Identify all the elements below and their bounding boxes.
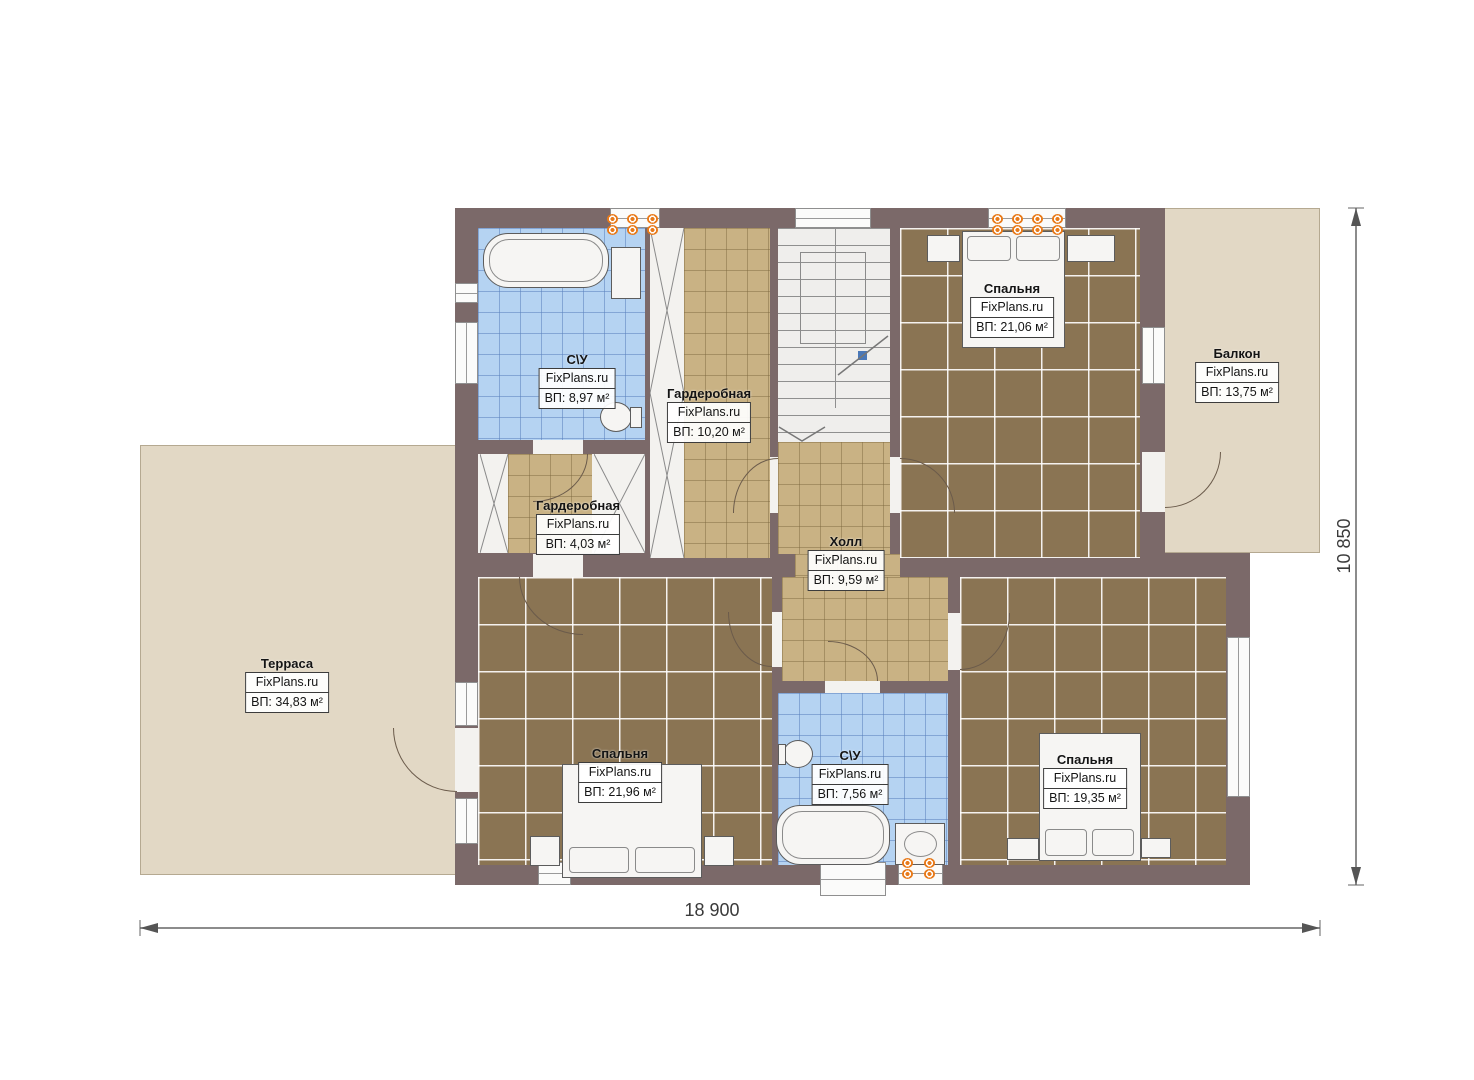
floor-plan: С\У FixPlans.ru ВП: 8,97 м² Гардеробная … [0,0,1474,1080]
nightstand [927,235,960,262]
room-area: ВП: 7,56 м² [812,784,889,805]
window [455,322,478,384]
room-name: Балкон [1195,346,1279,361]
room-watermark: FixPlans.ru [1043,768,1127,789]
room-label-hall: Холл FixPlans.ru ВП: 9,59 м² [808,534,885,591]
bedroom-top-door-opening [890,457,900,513]
bathroom-bottom-door-opening [825,681,880,693]
room-label-bathroom-top: С\У FixPlans.ru ВП: 8,97 м² [539,352,616,409]
room-area: ВП: 8,97 м² [539,388,616,409]
room-area: ВП: 21,96 м² [578,782,662,803]
room-name: Гардеробная [536,498,620,513]
nightstand [704,836,734,866]
room-label-bathroom-bottom: С\У FixPlans.ru ВП: 7,56 м² [812,748,889,805]
room-area: ВП: 13,75 м² [1195,382,1279,403]
wardrobe-x-icon [480,454,508,553]
room-label-wardrobe-top: Гардеробная FixPlans.ru ВП: 10,20 м² [667,386,751,443]
room-label-wardrobe-small: Гардеробная FixPlans.ru ВП: 4,03 м² [536,498,620,555]
room-name: С\У [812,748,889,763]
room-watermark: FixPlans.ru [245,672,329,693]
window [1142,327,1165,384]
toilet [783,740,813,768]
window-bay [820,862,886,896]
room-name: С\У [539,352,616,367]
radiator-icon [1032,214,1043,235]
room-watermark: FixPlans.ru [539,368,616,389]
room-label-bedroom-left: Спальня FixPlans.ru ВП: 21,96 м² [578,746,662,803]
balcony-door-opening [1142,452,1165,512]
wardrobe-small-door-opening [533,440,583,454]
room-name: Гардеробная [667,386,751,401]
bathtub [483,233,609,288]
radiator-icon [1012,214,1023,235]
room-area: ВП: 9,59 м² [808,570,885,591]
room-watermark: FixPlans.ru [1195,362,1279,383]
room-name: Спальня [1043,752,1127,767]
window [455,682,478,726]
radiator-icon [924,858,935,879]
room-watermark: FixPlans.ru [578,762,662,783]
room-watermark: FixPlans.ru [667,402,751,423]
dimension-width-label: 18 900 [632,900,792,921]
room-area: ВП: 21,06 м² [970,317,1054,338]
room-area: ВП: 4,03 м² [536,534,620,555]
room-watermark: FixPlans.ru [808,550,885,571]
nightstand [1007,838,1039,860]
radiator-icon [627,214,638,235]
room-name: Спальня [578,746,662,761]
hall-bedroom-right-door-opening [948,613,960,670]
nightstand [1067,235,1115,262]
toilet-tank [630,407,642,428]
radiator-icon [992,214,1003,235]
hall-bedroom-left-door-opening [772,612,782,667]
bedroom-left-door-opening [533,554,583,577]
stair-marker [858,351,867,360]
window [455,798,478,844]
room-watermark: FixPlans.ru [970,297,1054,318]
window [455,283,478,303]
room-label-terrace: Терраса FixPlans.ru ВП: 34,83 м² [245,656,329,713]
room-label-bedroom-right: Спальня FixPlans.ru ВП: 19,35 м² [1043,752,1127,809]
window [1227,637,1250,797]
radiator-icon [1052,214,1063,235]
room-watermark: FixPlans.ru [536,514,620,535]
room-area: ВП: 19,35 м² [1043,788,1127,809]
room-label-balcony: Балкон FixPlans.ru ВП: 13,75 м² [1195,346,1279,403]
radiator-icon [902,858,913,879]
dimension-height-label: 10 850 [1334,501,1354,591]
room-area: ВП: 10,20 м² [667,422,751,443]
room-name: Холл [808,534,885,549]
room-watermark: FixPlans.ru [812,764,889,785]
room-label-bedroom-top: Спальня FixPlans.ru ВП: 21,06 м² [970,281,1054,338]
room-area: ВП: 34,83 м² [245,692,329,713]
room-name: Спальня [970,281,1054,296]
terrace-door-opening [455,728,478,792]
window [795,208,871,228]
bathtub [776,805,890,865]
stair-rail [800,252,866,344]
room-name: Терраса [245,656,329,671]
washing-machine [611,247,641,299]
radiator-icon [647,214,658,235]
toilet-tank [778,744,786,765]
nightstand [530,836,560,866]
nightstand [1141,838,1171,858]
radiator-icon [607,214,618,235]
